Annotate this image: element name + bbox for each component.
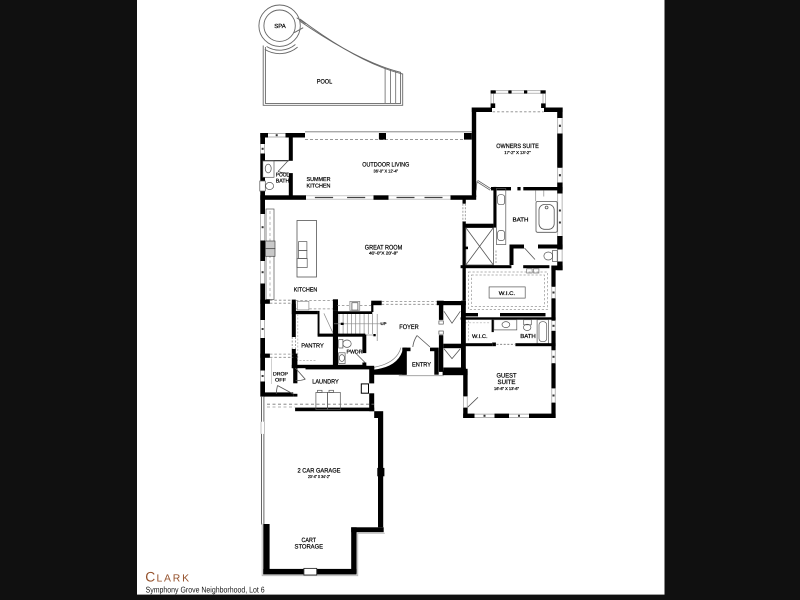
svg-text:OFF: OFF — [275, 378, 286, 384]
svg-text:OWNERS SUITE: OWNERS SUITE — [496, 143, 539, 150]
svg-text:23'-4" X 34'-2": 23'-4" X 34'-2" — [308, 474, 330, 479]
svg-text:16'-6" X 13'-6": 16'-6" X 13'-6" — [494, 386, 520, 391]
svg-text:POOL: POOL — [317, 79, 333, 86]
svg-text:PWDR: PWDR — [347, 350, 363, 356]
svg-text:OUTDOOR LIVING: OUTDOOR LIVING — [362, 161, 409, 168]
svg-text:Symphony Grove Neighborhood, L: Symphony Grove Neighborhood, Lot 6 — [146, 585, 265, 595]
svg-text:PANTRY: PANTRY — [301, 343, 324, 350]
svg-text:40'-0"X 20'-8": 40'-0"X 20'-8" — [369, 251, 399, 256]
svg-text:UP: UP — [381, 322, 388, 326]
svg-text:KITCHEN: KITCHEN — [294, 287, 318, 294]
svg-text:17'-2" X 13'-2": 17'-2" X 13'-2" — [504, 150, 531, 155]
svg-text:STORAGE: STORAGE — [295, 544, 324, 551]
svg-text:W.I.C.: W.I.C. — [499, 291, 516, 297]
svg-text:BATH: BATH — [276, 179, 290, 185]
svg-text:BATH: BATH — [513, 218, 529, 224]
svg-text:SUMMER: SUMMER — [307, 177, 331, 183]
svg-text:BATH: BATH — [520, 334, 536, 340]
svg-text:FOYER: FOYER — [399, 324, 419, 331]
svg-text:SPA: SPA — [274, 23, 286, 30]
svg-text:ENTRY: ENTRY — [412, 362, 431, 369]
svg-text:36'-0" X 12'-4": 36'-0" X 12'-4" — [374, 168, 399, 173]
svg-text:W.I.C.: W.I.C. — [472, 334, 488, 340]
svg-text:KITCHEN: KITCHEN — [307, 184, 331, 190]
svg-text:LAUNDRY: LAUNDRY — [312, 379, 339, 386]
